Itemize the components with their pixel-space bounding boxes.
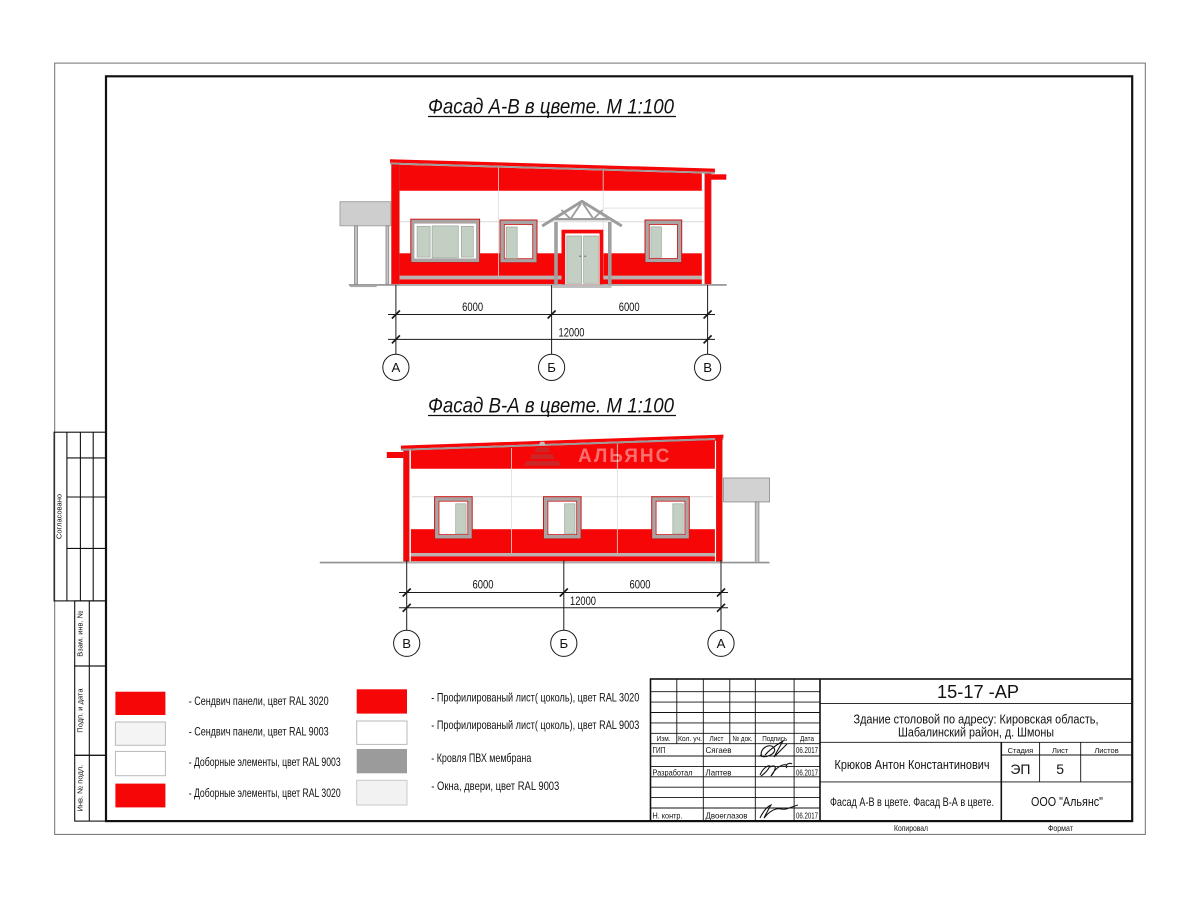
svg-text:- Кровля ПВХ мембрана: - Кровля ПВХ мембрана: [431, 751, 531, 765]
svg-text:Здание столовой по адресу: Кир: Здание столовой по адресу: Кировская обл…: [854, 713, 1099, 727]
svg-text:А: А: [392, 360, 401, 375]
svg-text:Сягаев: Сягаев: [706, 745, 732, 755]
svg-text:Листов: Листов: [1094, 746, 1118, 755]
svg-text:Копировал: Копировал: [894, 823, 928, 833]
svg-text:- Профилированый лист( цоколь): - Профилированый лист( цоколь), цвет RAL…: [431, 691, 639, 705]
svg-text:Кол. уч.: Кол. уч.: [678, 734, 702, 743]
svg-text:Крюков Антон Константинович: Крюков Антон Константинович: [835, 757, 990, 772]
svg-text:Стадия: Стадия: [1008, 746, 1034, 755]
svg-text:ООО "Альянс": ООО "Альянс": [1031, 794, 1103, 809]
svg-text:15-17 -АР: 15-17 -АР: [937, 681, 1019, 702]
svg-text:Фасад А-В в цвете. М 1:100: Фасад А-В в цвете. М 1:100: [428, 95, 674, 119]
svg-text:- Доборные элементы, цвет RAL: - Доборные элементы, цвет RAL 3020: [189, 786, 341, 800]
svg-text:6000: 6000: [619, 302, 640, 314]
svg-text:06.2017: 06.2017: [796, 745, 818, 755]
svg-text:Б: Б: [559, 636, 568, 651]
svg-text:Разработал: Разработал: [653, 768, 693, 778]
svg-text:- Сендвич панели, цвет RAL 900: - Сендвич панели, цвет RAL 9003: [189, 725, 329, 739]
svg-text:Фасад А-В в цвете. Фасад В-А в: Фасад А-В в цвете. Фасад В-А в цвете.: [830, 795, 994, 809]
svg-text:12000: 12000: [559, 327, 585, 339]
svg-text:5: 5: [1056, 761, 1064, 777]
svg-text:- Доборные элементы, цвет RAL: - Доборные элементы, цвет RAL 9003: [189, 755, 341, 769]
svg-text:12000: 12000: [570, 596, 596, 608]
svg-text:Лист: Лист: [1052, 746, 1069, 755]
svg-text:06.2017: 06.2017: [796, 768, 818, 778]
svg-text:Б: Б: [547, 360, 556, 375]
svg-text:6000: 6000: [473, 580, 494, 592]
svg-text:В: В: [402, 636, 411, 651]
svg-text:Н. контр.: Н. контр.: [653, 811, 683, 821]
svg-text:Формат: Формат: [1048, 823, 1073, 833]
svg-text:№ док.: № док.: [733, 734, 753, 743]
svg-text:- Окна, двери, цвет RAL 9003: - Окна, двери, цвет RAL 9003: [431, 779, 559, 793]
svg-text:- Сендвич панели, цвет RAL 302: - Сендвич панели, цвет RAL 3020: [189, 694, 329, 708]
svg-text:Лаптев: Лаптев: [706, 768, 732, 778]
svg-text:Инв. № подл.: Инв. № подл.: [76, 765, 85, 812]
svg-text:Двоеглазов: Двоеглазов: [706, 811, 748, 821]
svg-text:6000: 6000: [462, 302, 483, 314]
svg-text:Лист: Лист: [710, 734, 724, 743]
svg-text:Шабалинский район, д. Шмоны: Шабалинский район, д. Шмоны: [898, 726, 1054, 740]
svg-text:Фасад В-А в цвете. М 1:100: Фасад В-А в цвете. М 1:100: [428, 394, 674, 418]
svg-text:ЭП: ЭП: [1010, 761, 1030, 777]
svg-text:Подп. и дата: Подп. и дата: [76, 688, 85, 733]
svg-text:АЛЬЯНС: АЛЬЯНС: [578, 446, 671, 467]
svg-text:Дата: Дата: [800, 734, 815, 743]
svg-text:В: В: [703, 360, 712, 375]
svg-text:Изм.: Изм.: [657, 734, 671, 743]
svg-text:Согласовано: Согласовано: [55, 494, 64, 539]
svg-text:6000: 6000: [630, 580, 651, 592]
svg-text:ГИП: ГИП: [653, 745, 666, 755]
svg-text:А: А: [717, 636, 726, 651]
svg-text:Взам. инв. №: Взам. инв. №: [76, 610, 85, 656]
svg-text:- Профилированый лист( цоколь): - Профилированый лист( цоколь), цвет RAL…: [431, 718, 639, 732]
svg-text:06.2017: 06.2017: [796, 811, 818, 821]
svg-text:Подпись: Подпись: [762, 734, 787, 743]
